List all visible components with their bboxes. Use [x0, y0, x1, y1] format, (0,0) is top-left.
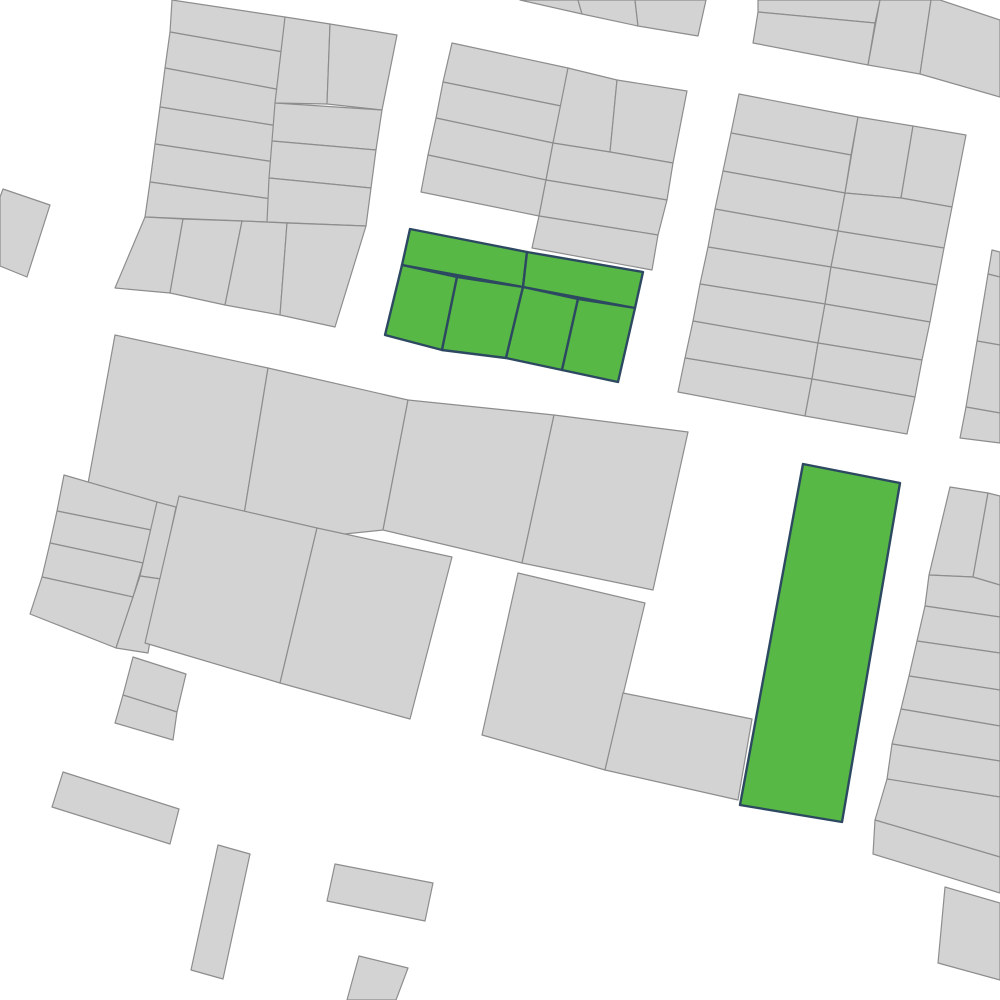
parcel-r1[interactable] [52, 772, 179, 844]
parcel-c3[interactable] [920, 0, 1000, 97]
parcel-n2[interactable] [605, 693, 752, 800]
parcel-r2[interactable] [191, 845, 250, 979]
parcel-b0-1[interactable] [520, 0, 582, 14]
parcel-a15[interactable] [280, 223, 366, 327]
parcel-q1[interactable] [938, 887, 1000, 980]
map-viewport [0, 0, 1000, 1000]
parcel-b0-2[interactable] [578, 0, 638, 26]
parcel-e2[interactable] [977, 274, 1000, 345]
parcel-b0-3[interactable] [635, 0, 706, 36]
parcel-map-canvas[interactable] [0, 0, 1000, 1000]
selected-parcel-g2[interactable] [740, 464, 900, 822]
parcel-w1[interactable] [0, 189, 50, 277]
parcel-a7[interactable] [275, 17, 330, 104]
parcel-e4[interactable] [960, 407, 1000, 443]
parcel-d10[interactable] [901, 126, 966, 207]
parcel-r4[interactable] [347, 956, 408, 1000]
parcel-r3[interactable] [327, 864, 433, 921]
parcel-a8[interactable] [327, 24, 397, 110]
parcel-e3[interactable] [966, 341, 1000, 413]
parcel-e1[interactable] [988, 250, 1000, 277]
parcel-b6[interactable] [610, 80, 687, 163]
